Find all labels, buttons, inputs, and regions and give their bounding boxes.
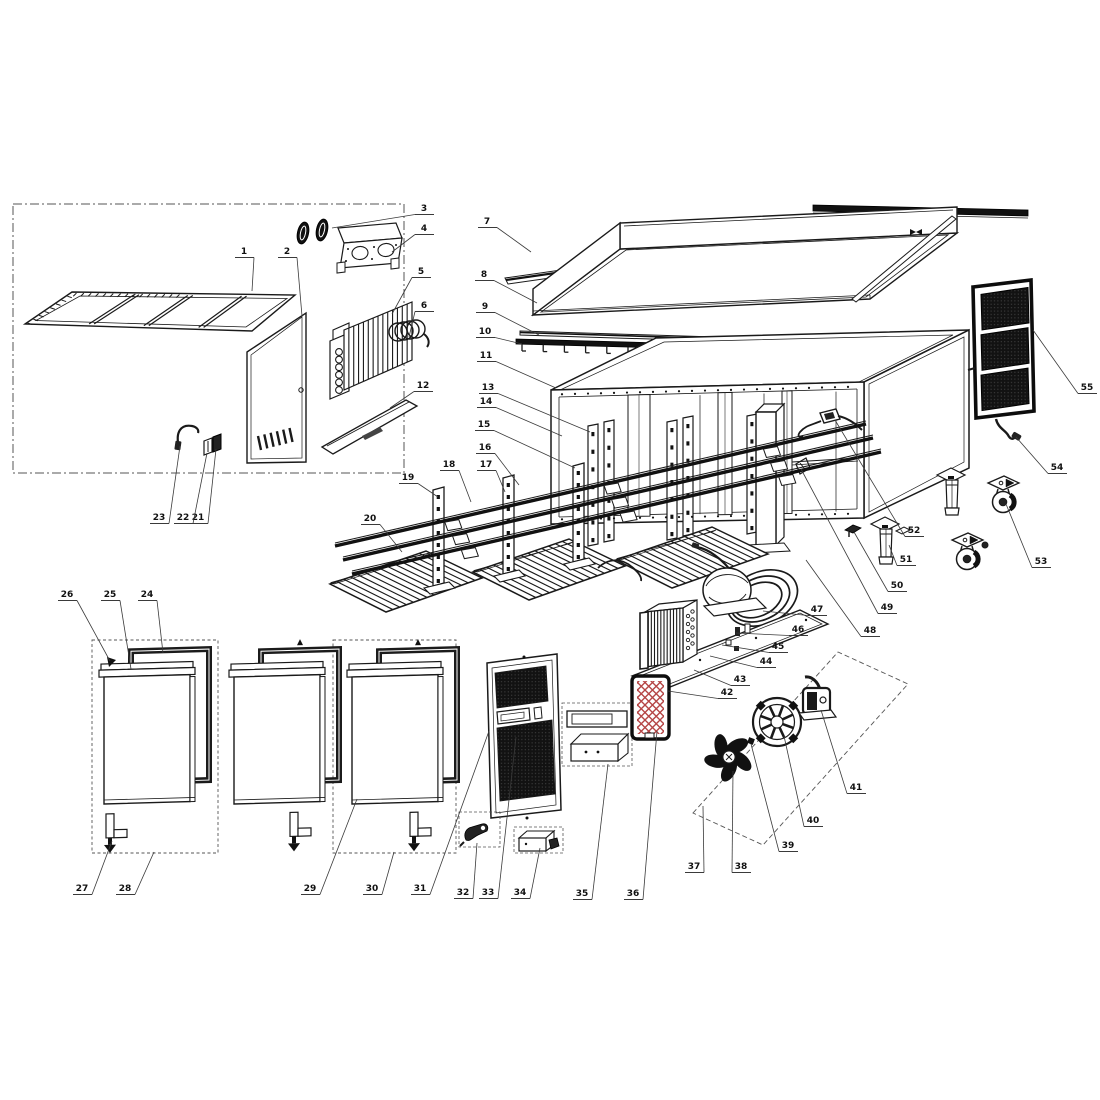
fan-partition-group bbox=[693, 652, 908, 845]
part-number-44: 44 bbox=[760, 657, 773, 667]
cabinet-body bbox=[551, 330, 969, 553]
part-number-8: 8 bbox=[481, 270, 487, 280]
thermostat-kit bbox=[562, 703, 632, 766]
part-number-51: 51 bbox=[900, 555, 913, 565]
part-number-13: 13 bbox=[482, 383, 495, 393]
fan-nut bbox=[747, 737, 755, 745]
part-number-6: 6 bbox=[421, 301, 427, 311]
part-label-7: 7 bbox=[478, 217, 531, 252]
fan-motor bbox=[799, 677, 836, 720]
part-number-35: 35 bbox=[576, 889, 589, 899]
condenser-coil bbox=[640, 600, 697, 669]
part-number-46: 46 bbox=[792, 625, 805, 635]
clamp-pair bbox=[204, 434, 221, 455]
part-label-25: 25 bbox=[101, 590, 131, 669]
louvered-panel bbox=[487, 654, 561, 820]
part-label-36: 36 bbox=[624, 731, 657, 900]
part-label-23: 23 bbox=[150, 446, 180, 524]
part-number-27: 27 bbox=[76, 884, 89, 894]
part-number-9: 9 bbox=[482, 302, 488, 312]
part-label-55: 55 bbox=[1033, 330, 1097, 394]
condenser-grille bbox=[968, 280, 1034, 441]
part-label-30: 30 bbox=[363, 852, 394, 895]
part-label-21: 21 bbox=[189, 449, 216, 524]
part-number-54: 54 bbox=[1051, 463, 1064, 473]
part-number-53: 53 bbox=[1035, 557, 1048, 567]
part-number-19: 19 bbox=[402, 473, 415, 483]
part-number-3: 3 bbox=[421, 204, 427, 214]
diagram-canvas: 1234567891011121314151617181920212223242… bbox=[0, 0, 1100, 1100]
air-filter bbox=[632, 676, 669, 739]
part-number-36: 36 bbox=[627, 889, 640, 899]
part-number-15: 15 bbox=[478, 420, 491, 430]
part-number-30: 30 bbox=[366, 884, 379, 894]
part-number-2: 2 bbox=[284, 247, 290, 257]
electrical-group bbox=[459, 654, 669, 853]
part-number-5: 5 bbox=[418, 267, 424, 277]
part-number-14: 14 bbox=[480, 397, 493, 407]
part-label-28: 28 bbox=[116, 852, 154, 895]
part-number-40: 40 bbox=[807, 816, 820, 826]
part-label-19: 19 bbox=[399, 473, 438, 497]
worktop-tray bbox=[533, 207, 957, 315]
evaporator-coil bbox=[330, 302, 412, 399]
part-number-38: 38 bbox=[735, 862, 748, 872]
rear-access-panel bbox=[247, 313, 306, 463]
door-assembly bbox=[347, 638, 457, 853]
part-number-1: 1 bbox=[241, 247, 247, 257]
part-number-32: 32 bbox=[457, 888, 470, 898]
part-label-1: 1 bbox=[235, 247, 254, 291]
sensor-tube bbox=[174, 426, 198, 451]
part-number-24: 24 bbox=[141, 590, 154, 600]
evaporator-kit-box bbox=[13, 204, 429, 473]
part-label-27: 27 bbox=[73, 841, 112, 895]
part-number-28: 28 bbox=[119, 884, 132, 894]
part-number-16: 16 bbox=[479, 443, 492, 453]
part-label-53: 53 bbox=[1006, 504, 1051, 568]
compressor bbox=[703, 568, 766, 616]
leg-clip bbox=[845, 525, 861, 537]
doors-group bbox=[92, 638, 457, 853]
part-label-51: 51 bbox=[889, 545, 916, 566]
part-label-38: 38 bbox=[732, 771, 751, 873]
casters bbox=[952, 476, 1019, 570]
part-number-22: 22 bbox=[177, 513, 190, 523]
part-label-40: 40 bbox=[784, 736, 823, 827]
fan-guard bbox=[753, 698, 801, 746]
top-grille-frame bbox=[25, 292, 295, 331]
part-number-17: 17 bbox=[480, 460, 493, 470]
part-number-48: 48 bbox=[864, 626, 877, 636]
part-number-20: 20 bbox=[364, 514, 377, 524]
part-label-34: 34 bbox=[511, 848, 540, 899]
part-label-39: 39 bbox=[751, 744, 798, 852]
part-label-42: 42 bbox=[668, 688, 737, 699]
part-number-42: 42 bbox=[721, 688, 734, 698]
part-number-49: 49 bbox=[881, 603, 894, 613]
part-number-23: 23 bbox=[153, 513, 166, 523]
part-number-50: 50 bbox=[891, 581, 904, 591]
part-number-10: 10 bbox=[479, 327, 492, 337]
grommet-pair bbox=[295, 218, 329, 245]
part-label-17: 17 bbox=[477, 460, 505, 492]
fan-blade bbox=[703, 733, 755, 784]
part-number-39: 39 bbox=[782, 841, 795, 851]
fan-bracket bbox=[337, 223, 402, 273]
part-number-4: 4 bbox=[421, 224, 427, 234]
part-number-37: 37 bbox=[688, 862, 701, 872]
part-number-47: 47 bbox=[811, 605, 824, 615]
door-hinge bbox=[408, 812, 431, 852]
part-number-55: 55 bbox=[1081, 383, 1094, 393]
door-assembly bbox=[99, 649, 209, 853]
part-number-12: 12 bbox=[417, 381, 430, 391]
part-number-45: 45 bbox=[772, 642, 785, 652]
wire-shelves bbox=[330, 527, 768, 612]
part-number-29: 29 bbox=[304, 884, 317, 894]
part-number-52: 52 bbox=[908, 526, 921, 536]
part-label-29: 29 bbox=[301, 799, 357, 895]
part-number-25: 25 bbox=[104, 590, 117, 600]
part-label-54: 54 bbox=[1016, 437, 1067, 474]
part-number-7: 7 bbox=[484, 217, 490, 227]
part-number-41: 41 bbox=[850, 783, 863, 793]
door-hinge bbox=[288, 812, 311, 852]
part-number-26: 26 bbox=[61, 590, 74, 600]
part-number-18: 18 bbox=[443, 460, 456, 470]
part-label-32: 32 bbox=[454, 843, 477, 899]
door-assembly bbox=[229, 638, 339, 853]
junction-box-kit bbox=[514, 827, 563, 853]
part-number-34: 34 bbox=[514, 888, 527, 898]
exploded-parts-diagram: 1234567891011121314151617181920212223242… bbox=[0, 0, 1100, 1100]
part-label-41: 41 bbox=[821, 710, 866, 794]
door-hinge bbox=[104, 813, 127, 853]
part-label-37: 37 bbox=[685, 806, 704, 873]
part-number-43: 43 bbox=[734, 675, 747, 685]
part-label-35: 35 bbox=[573, 764, 608, 900]
part-number-11: 11 bbox=[480, 351, 493, 361]
part-number-33: 33 bbox=[482, 888, 495, 898]
mounting-channel bbox=[322, 400, 417, 454]
part-label-10: 10 bbox=[476, 327, 522, 344]
part-label-24: 24 bbox=[138, 590, 163, 653]
part-number-31: 31 bbox=[414, 884, 427, 894]
